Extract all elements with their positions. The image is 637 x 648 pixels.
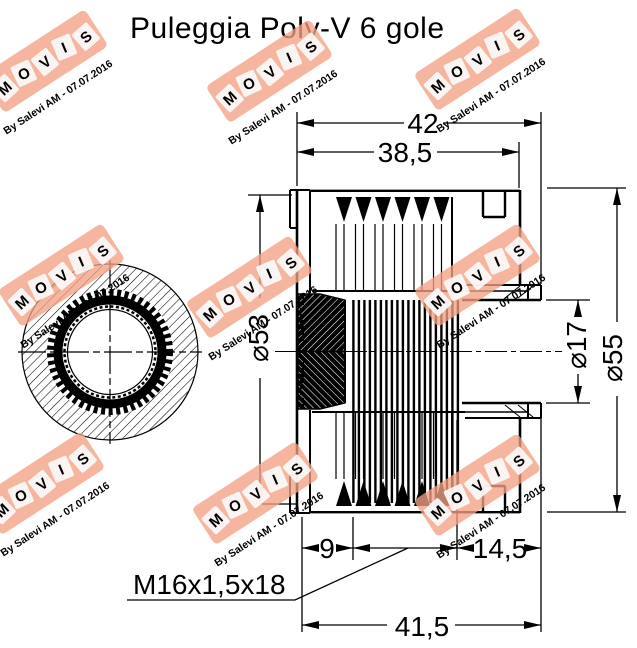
sectioned-sleeve	[350, 300, 460, 503]
dim-hub-offset: 14,5	[473, 533, 528, 564]
movis-watermark	[0, 9, 120, 137]
dim-grooved-width: 38,5	[378, 137, 433, 168]
drawing-canvas: M O V I S By Salevi AM - 07.07.2016	[0, 0, 637, 648]
dim-overall-width: 42	[407, 108, 438, 139]
dim-body-length: 41,5	[395, 611, 450, 642]
technical-drawing: M O V I S By Salevi AM - 07.07.2016	[0, 0, 637, 648]
dim-thread-depth: 9	[319, 533, 335, 564]
movis-watermark	[0, 431, 117, 559]
thread-spec-label: M16x1,5x18	[133, 569, 286, 600]
dim-outer-diameter: ⌀55	[597, 334, 628, 382]
dim-bore-diameter: ⌀17	[561, 321, 592, 369]
